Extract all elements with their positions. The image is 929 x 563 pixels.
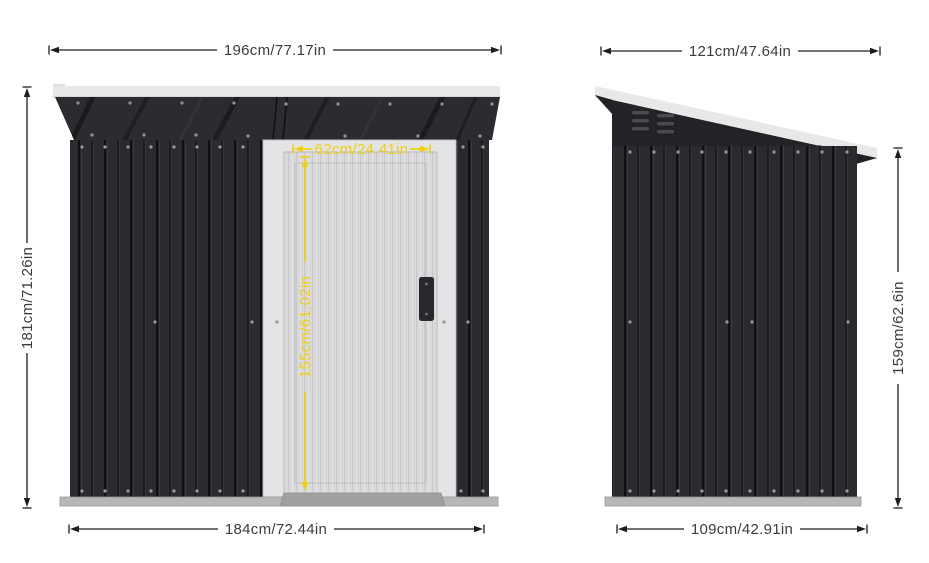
door-threshold (280, 493, 445, 506)
side-roof-depth-label: 121cm/47.64in (689, 43, 791, 60)
side-view (595, 86, 877, 506)
door-handle-screw (425, 313, 428, 316)
side-height-label: 159cm/62.6in (890, 281, 907, 375)
side-wall (612, 146, 857, 498)
shed-dimension-diagram: 62cm/24.41in 155cm/61.02in (0, 0, 929, 563)
front-view: 62cm/24.41in 155cm/61.02in (53, 84, 500, 506)
side-base-depth-label: 109cm/42.91in (691, 521, 793, 538)
front-roof-width-label: 196cm/77.17in (224, 42, 326, 59)
front-height-label: 181cm/71.26in (19, 247, 36, 349)
door-handle-screw (425, 283, 428, 286)
door-height-label: 155cm/61.02in (297, 276, 314, 378)
front-base-width-label: 184cm/72.44in (225, 521, 327, 538)
diagram-svg: 62cm/24.41in 155cm/61.02in (0, 0, 929, 563)
front-roof-cap (53, 86, 500, 97)
side-base-rail (605, 497, 861, 506)
door-width-label: 62cm/24.41in (315, 141, 409, 158)
